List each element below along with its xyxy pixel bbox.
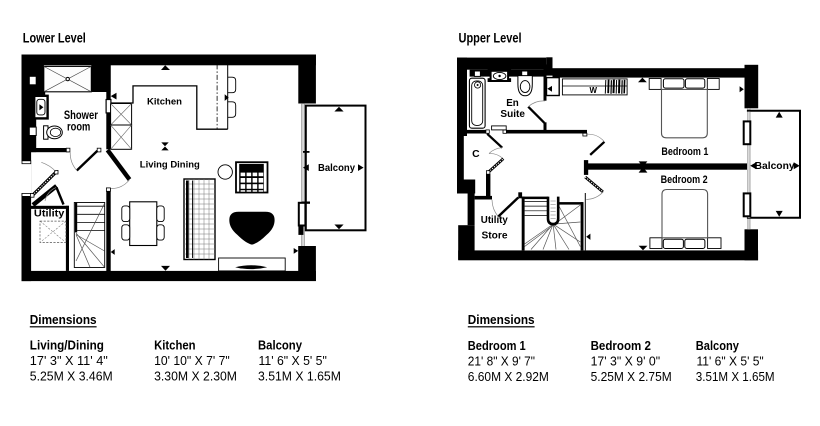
svg-text:17' 3" X 9' 0": 17' 3" X 9' 0" [591,354,661,369]
svg-text:Suite: Suite [500,109,525,120]
svg-text:Bedroom 1: Bedroom 1 [468,338,526,353]
svg-text:3.51M X 1.65M: 3.51M X 1.65M [696,369,775,384]
svg-text:Utility: Utility [34,208,65,219]
svg-text:Dimensions: Dimensions [468,312,535,327]
svg-text:Utility: Utility [481,214,508,226]
svg-text:Lower Level: Lower Level [23,30,86,46]
svg-text:C: C [472,149,480,160]
svg-text:Bedroom 2: Bedroom 2 [661,174,708,186]
svg-text:Bedroom 1: Bedroom 1 [661,146,708,158]
svg-text:Store: Store [482,230,508,242]
svg-text:Balcony: Balcony [696,338,740,353]
svg-text:Balcony: Balcony [318,163,355,174]
svg-text:Kitchen: Kitchen [147,97,182,108]
svg-text:Upper Level: Upper Level [459,30,522,46]
svg-text:Shower: Shower [64,110,98,122]
svg-text:11' 6" X 5' 5": 11' 6" X 5' 5" [259,353,328,368]
svg-text:room: room [67,122,90,134]
svg-text:3.51M X 1.65M: 3.51M X 1.65M [258,369,341,384]
svg-text:3.30M X 2.30M: 3.30M X 2.30M [154,369,237,384]
svg-text:Bedroom 2: Bedroom 2 [591,338,651,353]
svg-text:Living Dining: Living Dining [140,159,200,170]
svg-text:6.60M X 2.92M: 6.60M X 2.92M [468,369,549,384]
svg-text:Dimensions: Dimensions [30,312,97,327]
svg-text:11' 6" X 5' 5": 11' 6" X 5' 5" [697,354,765,369]
svg-text:Living/Dining: Living/Dining [30,338,104,353]
svg-text:W: W [590,86,598,95]
svg-text:Kitchen: Kitchen [154,338,196,353]
svg-text:5.25M X 2.75M: 5.25M X 2.75M [591,369,672,384]
svg-text:21' 8" X 9' 7": 21' 8" X 9' 7" [468,354,536,369]
svg-text:17' 3" X 11' 4": 17' 3" X 11' 4" [30,353,108,368]
svg-text:Balcony: Balcony [258,338,303,353]
svg-text:5.25M X 3.46M: 5.25M X 3.46M [30,369,113,384]
svg-text:En: En [506,98,519,109]
svg-text:10' 10" X 7' 7": 10' 10" X 7' 7" [154,353,230,368]
svg-text:Balcony: Balcony [755,161,795,172]
